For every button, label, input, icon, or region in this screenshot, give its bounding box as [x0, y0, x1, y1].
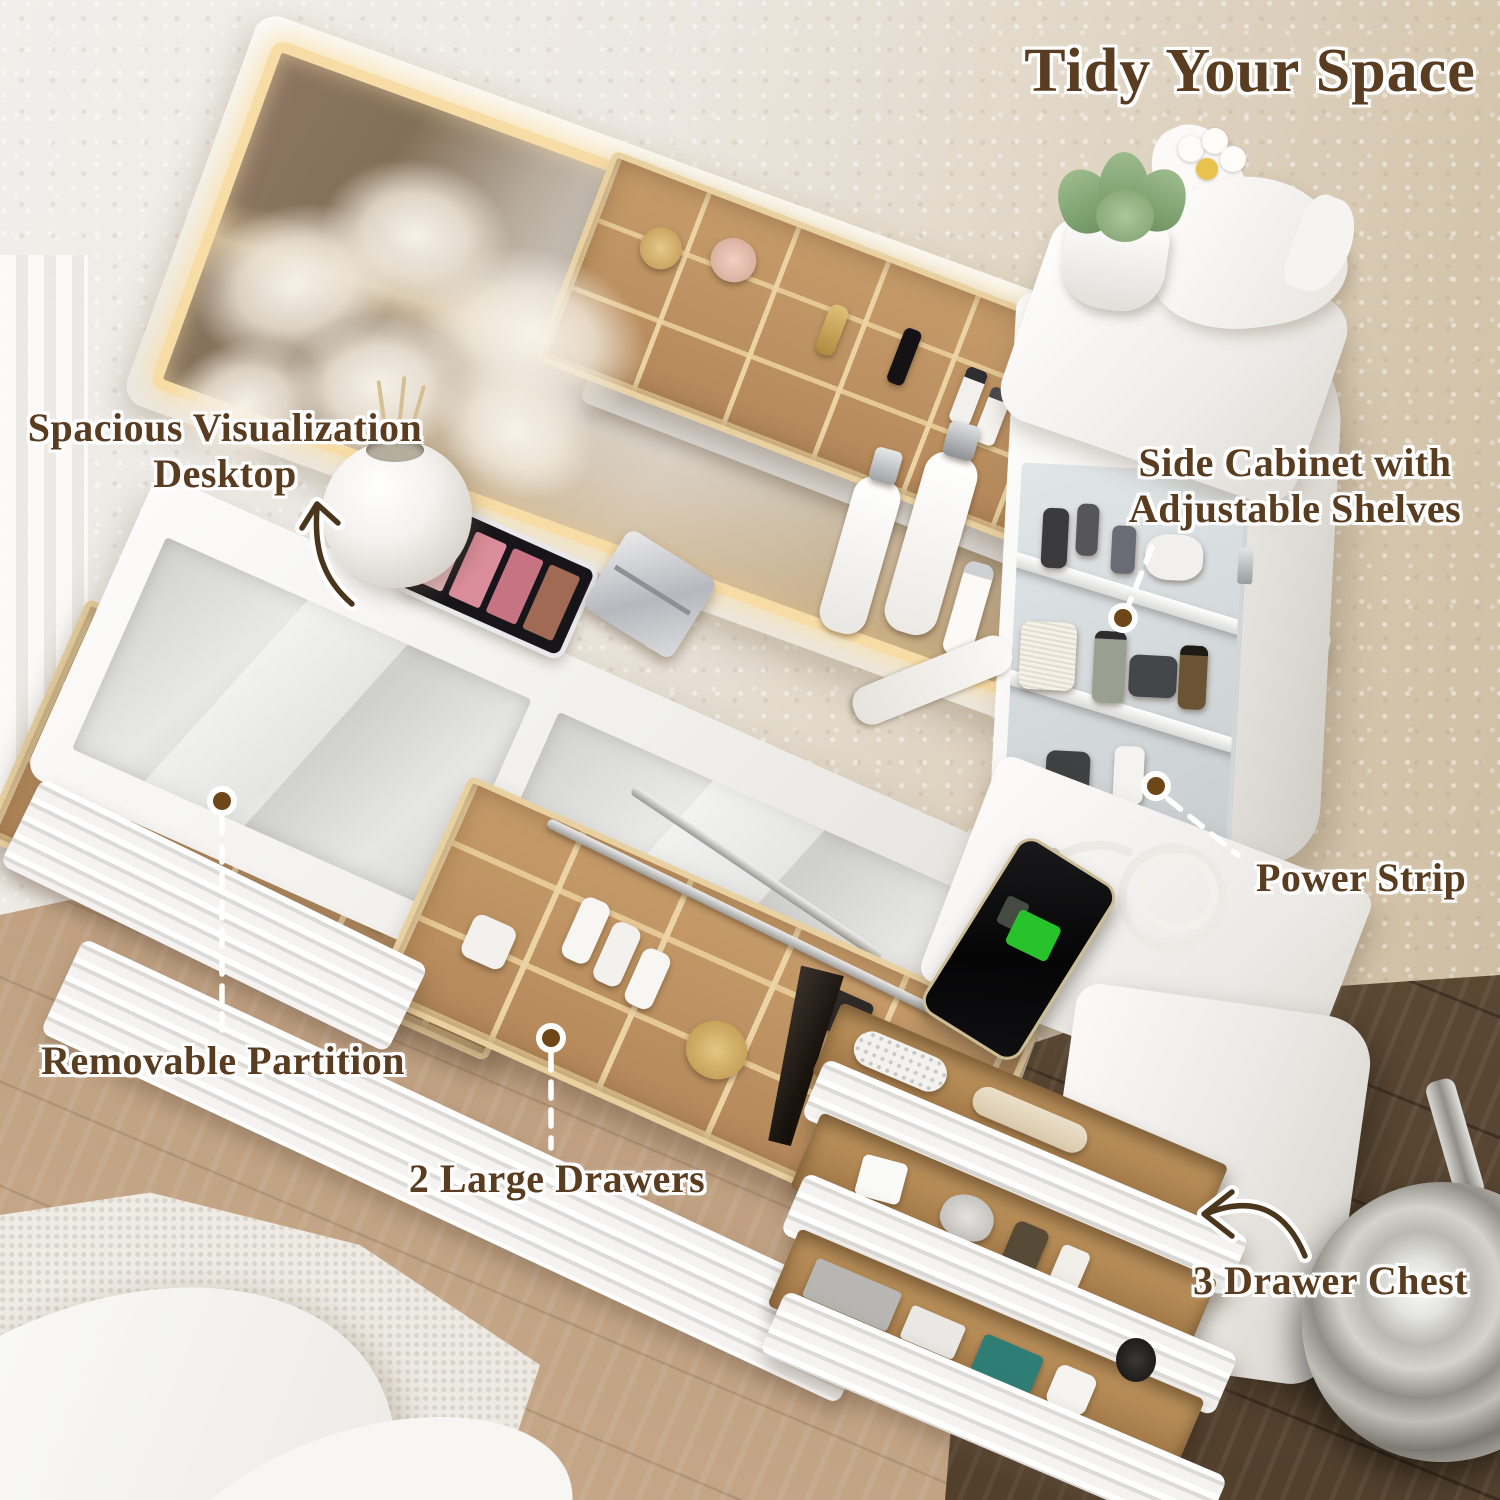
tube-item — [847, 630, 1018, 730]
callout-removable-partition: Removable Partition — [41, 1038, 405, 1084]
bottle-cap-item — [867, 446, 903, 486]
succulent-plant — [1096, 190, 1154, 242]
callout-drawer-chest: 3 Drawer Chest — [1193, 1258, 1468, 1304]
white-pot-item — [458, 912, 519, 973]
cream-jar-item — [1144, 533, 1204, 582]
vanity-product-infographic: Tidy Your Space Spacious Visualization D… — [0, 0, 1500, 1500]
cosmetic-item — [704, 231, 763, 289]
flower-petal — [1220, 146, 1246, 172]
callout-side-cabinet-line1: Side Cabinet with — [1129, 440, 1461, 486]
callout-power-strip: Power Strip — [1256, 855, 1466, 901]
cosmetic-item — [634, 221, 688, 275]
caster-wheel — [1116, 1338, 1156, 1382]
amber-bottle-item — [1177, 645, 1208, 710]
gold-jar-item — [676, 1011, 756, 1089]
flower-petal — [1196, 158, 1218, 180]
dark-jar-item — [1128, 654, 1178, 698]
callout-large-drawers: 2 Large Drawers — [409, 1156, 705, 1202]
callout-side-cabinet-line2: Adjustable Shelves — [1129, 486, 1461, 532]
callout-desktop-line1: Spacious Visualization — [28, 405, 422, 451]
flower-petal — [1178, 136, 1204, 162]
callout-desktop-line2: Desktop — [28, 451, 422, 497]
bottle-item — [1091, 630, 1127, 704]
cosmetic-item — [813, 302, 850, 358]
page-title: Tidy Your Space — [1024, 36, 1475, 108]
callout-desktop: Spacious Visualization Desktop — [28, 405, 422, 498]
door-hinge — [1237, 548, 1254, 585]
lipstick-item — [885, 326, 923, 387]
callout-side-cabinet: Side Cabinet with Adjustable Shelves — [1129, 440, 1461, 533]
